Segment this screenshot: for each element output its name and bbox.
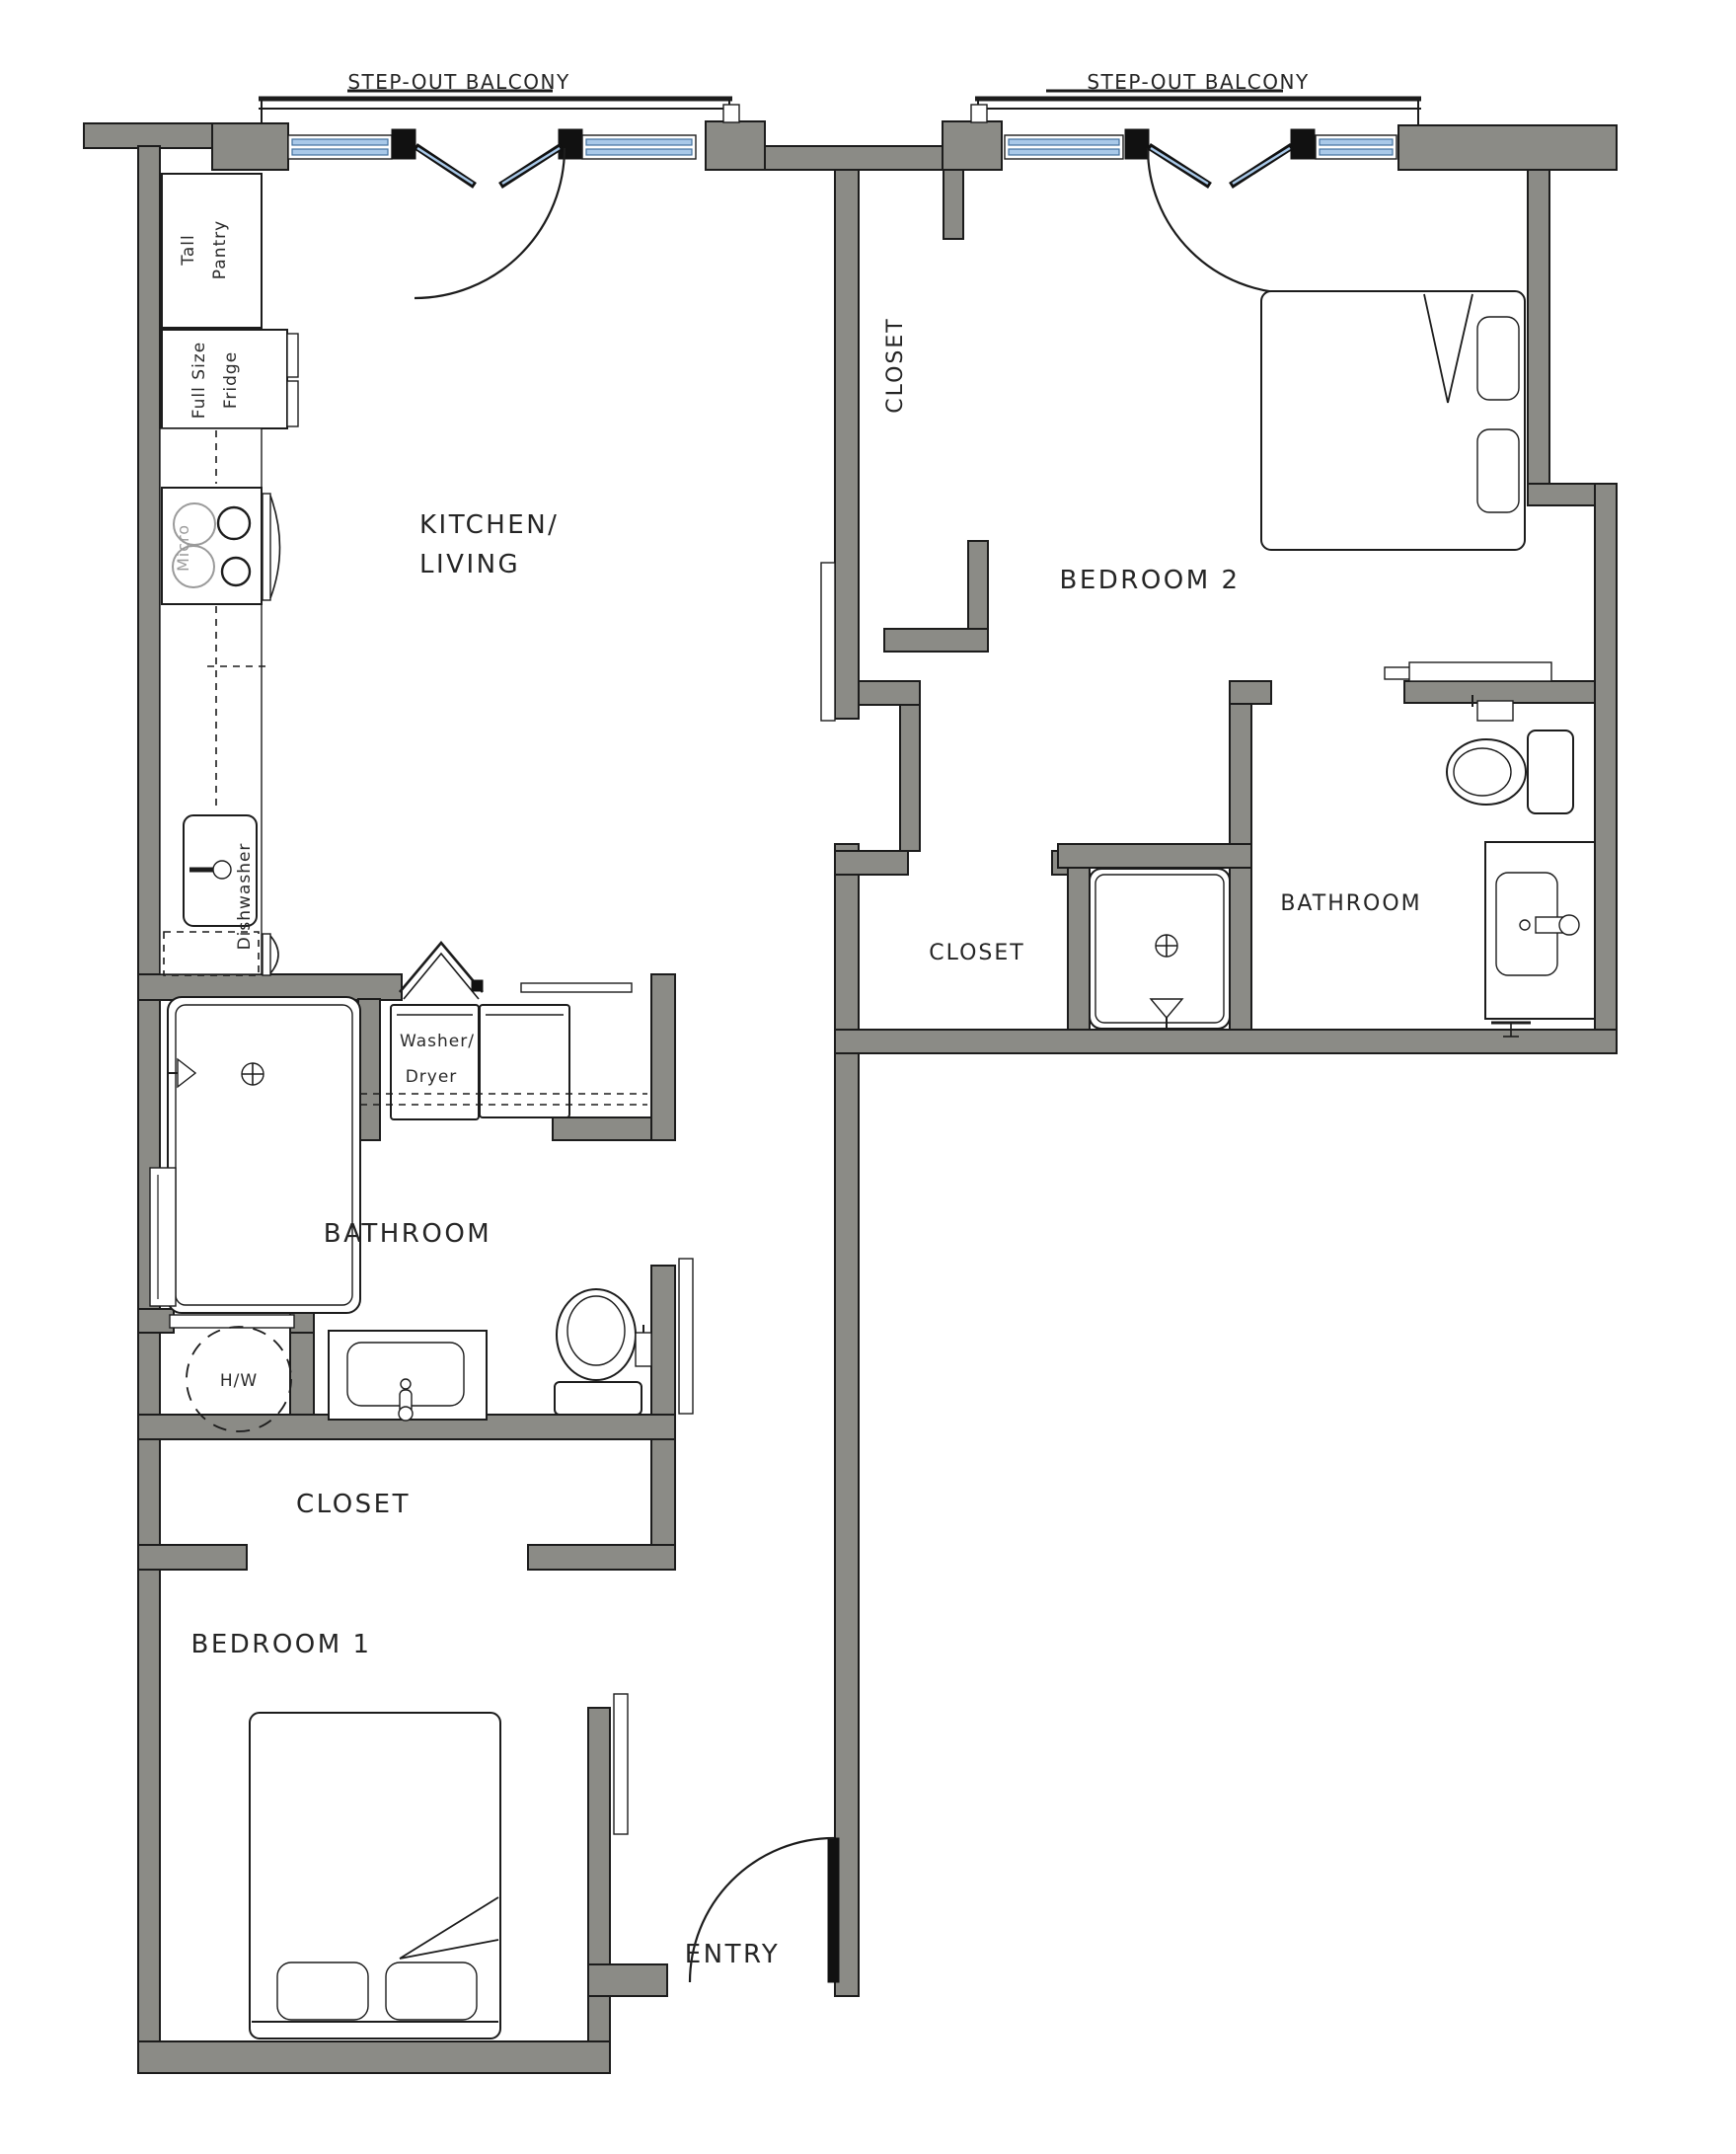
washer-dryer-label-line2: Dryer xyxy=(406,1067,458,1087)
wall-balcony-block-a xyxy=(706,121,765,170)
wall-between-balconies xyxy=(765,146,943,170)
vanity-2 xyxy=(1485,842,1595,1019)
wall-closet1-south-right xyxy=(528,1545,675,1570)
pillow xyxy=(277,1962,368,2020)
door-hinge-block xyxy=(392,129,415,159)
balcony-2-deck xyxy=(975,91,1421,125)
range-door-arc xyxy=(270,496,280,598)
towel-bar xyxy=(1385,662,1551,681)
bathroom1-label: BATHROOM xyxy=(324,1219,491,1249)
hw-closet-door xyxy=(170,1315,294,1328)
balcony-door-assembly-2 xyxy=(971,105,1396,293)
entry-door-leaf xyxy=(828,1838,839,1982)
wall-wd-south xyxy=(553,1117,651,1140)
wall-bathroom2-north xyxy=(1404,681,1595,703)
wall-top-right xyxy=(1398,125,1617,170)
closet1-label: CLOSET xyxy=(296,1490,411,1519)
wall-south-long xyxy=(835,1030,1617,1053)
floor-plan-drawing: STEP-OUT BALCONY STEP-OUT BALCONY KITCHE… xyxy=(0,0,1736,2154)
wall-vestibule-south xyxy=(588,1964,667,1996)
wall-hw-east-stub xyxy=(290,1333,314,1416)
washer-dryer-label-line1: Washer/ xyxy=(400,1032,475,1051)
bathroom2-label: BATHROOM xyxy=(1280,891,1421,916)
dryer xyxy=(480,1005,569,1117)
wall-divider-upper xyxy=(835,170,859,719)
entry-label: ENTRY xyxy=(685,1940,781,1969)
kitchen-living-label-line2: LIVING xyxy=(419,550,520,579)
wall-bedroom2-sw-stub-v xyxy=(900,705,920,851)
bed-2 xyxy=(1261,291,1525,550)
toilet-paper-icon xyxy=(636,1325,651,1366)
door-hinge-block xyxy=(1291,129,1315,159)
closet-hall-label: CLOSET xyxy=(929,941,1024,965)
balcony-2-label: STEP-OUT BALCONY xyxy=(1087,70,1309,94)
wall-bath1-east-lower xyxy=(651,1266,675,1552)
wall-shower1-east xyxy=(358,999,380,1140)
wall-balcony-block-b xyxy=(943,121,1002,170)
kitchen-living-label-line1: KITCHEN/ xyxy=(419,510,559,540)
fridge-label-line2: Fridge xyxy=(221,351,241,409)
wall-hw-north-left xyxy=(138,1309,174,1333)
wall-bedroom2-sw-stub-h xyxy=(859,681,920,705)
dishwasher-handle xyxy=(263,934,270,975)
door-swing-arc xyxy=(1148,148,1293,293)
shower-drain-icon xyxy=(1156,935,1177,957)
floor-plan-page: STEP-OUT BALCONY STEP-OUT BALCONY KITCHE… xyxy=(0,0,1736,2154)
shower-drain-icon xyxy=(242,1063,264,1085)
wall-hallcloset-north-left xyxy=(835,851,908,875)
wall-closet-b2-stub xyxy=(943,170,963,239)
wall-bathroom2-west-stub xyxy=(1230,681,1271,704)
washer xyxy=(391,1005,479,1119)
wall-bedroom2-east xyxy=(1528,170,1549,505)
wall-closet-b2-corner-h xyxy=(884,629,988,652)
wall-bathroom2-east xyxy=(1595,484,1617,1053)
laundry-shelf xyxy=(521,983,632,992)
fridge-door xyxy=(287,334,298,377)
tall-pantry-label-line2: Pantry xyxy=(210,220,230,279)
toilet-1 xyxy=(555,1289,651,1415)
pocket-door-bathroom1 xyxy=(679,1259,693,1414)
balcony-1-deck xyxy=(259,91,732,125)
shower-2 xyxy=(1090,869,1230,1030)
dishwasher-door-arc xyxy=(270,936,278,973)
micro-label: Micro xyxy=(174,524,192,572)
wall-bedroom1-east xyxy=(588,1708,610,2073)
wall-hallcloset-east xyxy=(1068,844,1090,1053)
wall-wd-east xyxy=(651,974,675,1140)
wall-top-left xyxy=(212,123,288,170)
door-leaf xyxy=(1149,146,1292,186)
range-handle xyxy=(263,494,270,600)
pocket-door-bedroom1 xyxy=(614,1694,628,1834)
toilet-2 xyxy=(1447,731,1573,813)
door-hinge-block xyxy=(1125,129,1149,159)
water-heater-label: H/W xyxy=(220,1371,258,1391)
pocket-door-bedroom2-suite xyxy=(821,563,835,721)
bed-1 xyxy=(250,1713,500,2039)
dishwasher-label: Dishwasher xyxy=(235,843,255,951)
fridge-door xyxy=(287,381,298,426)
pillow xyxy=(386,1962,477,2020)
bathroom1-window-niche xyxy=(150,1168,176,1306)
bifold-door xyxy=(404,954,479,999)
bifold-door xyxy=(400,943,483,992)
vanity-1 xyxy=(329,1331,487,1421)
wall-bedroom1-south xyxy=(138,2041,610,2073)
closet-bedroom2-label: CLOSET xyxy=(883,317,908,413)
kitchen-cabinets xyxy=(160,174,298,975)
pillow xyxy=(1477,429,1519,512)
wall-left-exterior xyxy=(138,146,160,2073)
bifold-hinge xyxy=(472,980,483,991)
wall-closet1-south-left xyxy=(138,1545,247,1570)
tall-pantry-label-line1: Tall xyxy=(179,234,198,266)
wall-divider-lower xyxy=(835,844,859,1996)
door-threshold-marker xyxy=(723,105,739,122)
door-swing-arc xyxy=(415,148,565,298)
door-hinge-block xyxy=(559,129,582,159)
bedroom1-label: BEDROOM 1 xyxy=(190,1630,371,1659)
fridge-label-line1: Full Size xyxy=(189,342,209,419)
wall-shower2-north xyxy=(1058,844,1251,868)
door-threshold-marker xyxy=(971,105,987,122)
balcony-door-assembly-1 xyxy=(288,105,739,298)
door-leaf xyxy=(415,146,562,186)
balcony-1-label: STEP-OUT BALCONY xyxy=(347,70,569,94)
shower-1 xyxy=(168,997,360,1313)
bedroom2-label: BEDROOM 2 xyxy=(1059,566,1240,595)
pillow xyxy=(1477,317,1519,400)
